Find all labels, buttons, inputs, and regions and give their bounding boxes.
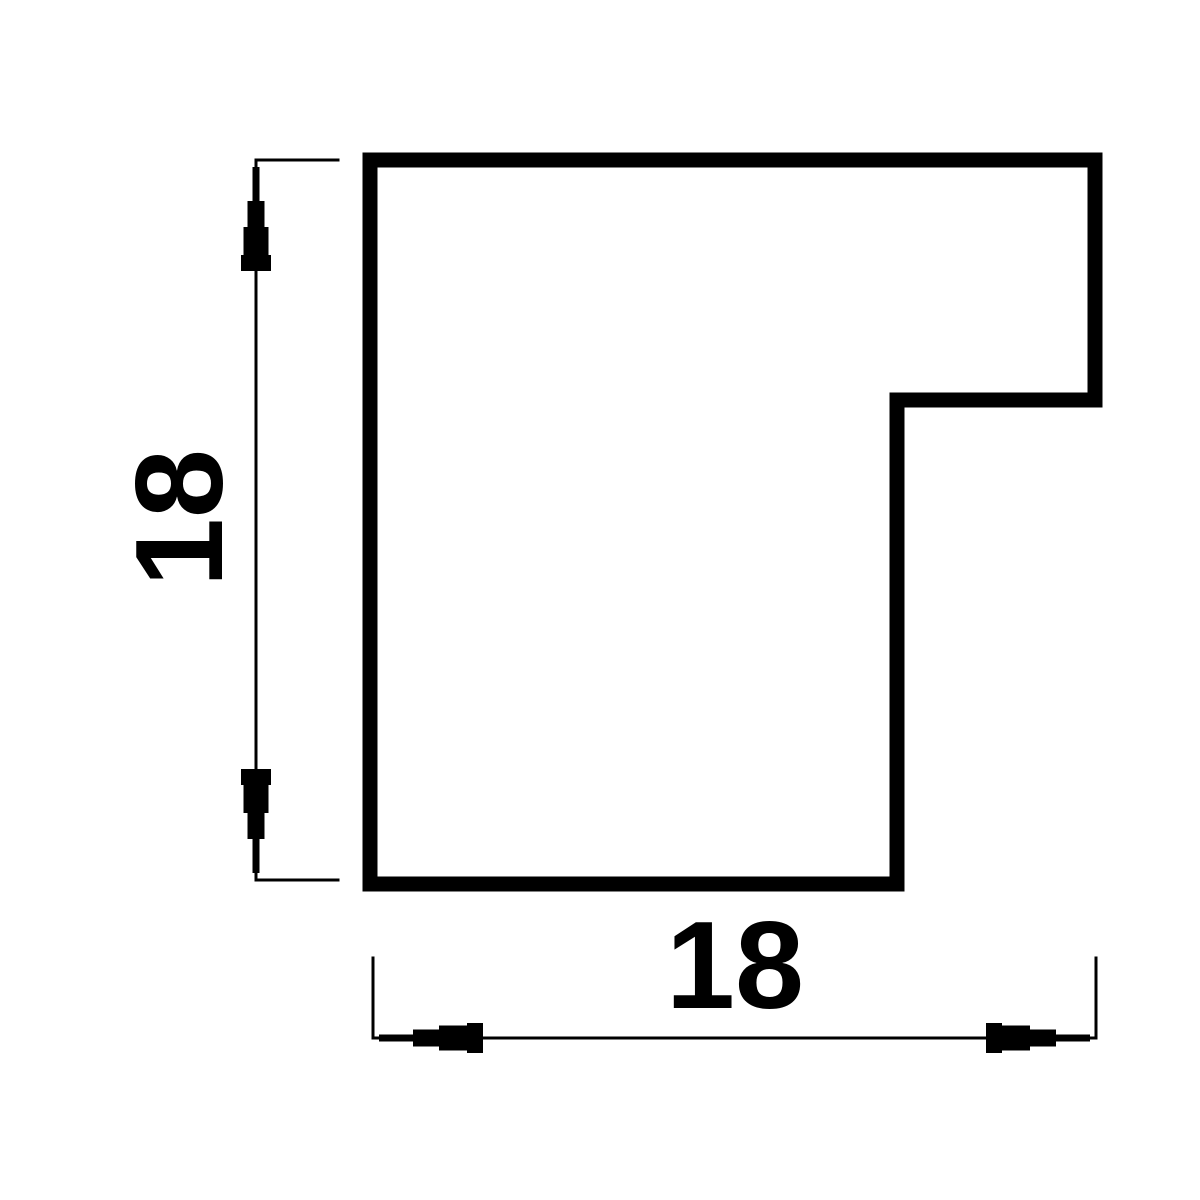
vertical-dimension-label: 18 [111,449,249,587]
moulding-profile-outline [370,160,1095,884]
extension-line-right [1091,958,1096,1038]
dimension-arrow-up-icon [241,167,271,271]
technical-drawing: 18 18 [0,0,1200,1200]
horizontal-dimension: 18 [373,897,1096,1053]
horizontal-dimension-label: 18 [666,897,804,1035]
drawing-canvas: 18 18 [0,0,1200,1200]
extension-line-left [373,958,378,1038]
dimension-arrow-left-icon [379,1023,483,1053]
vertical-dimension: 18 [111,160,338,880]
extension-line-top [256,160,338,167]
extension-line-bottom [256,873,338,880]
dimension-arrow-down-icon [241,769,271,873]
dimension-arrow-right-icon [986,1023,1090,1053]
